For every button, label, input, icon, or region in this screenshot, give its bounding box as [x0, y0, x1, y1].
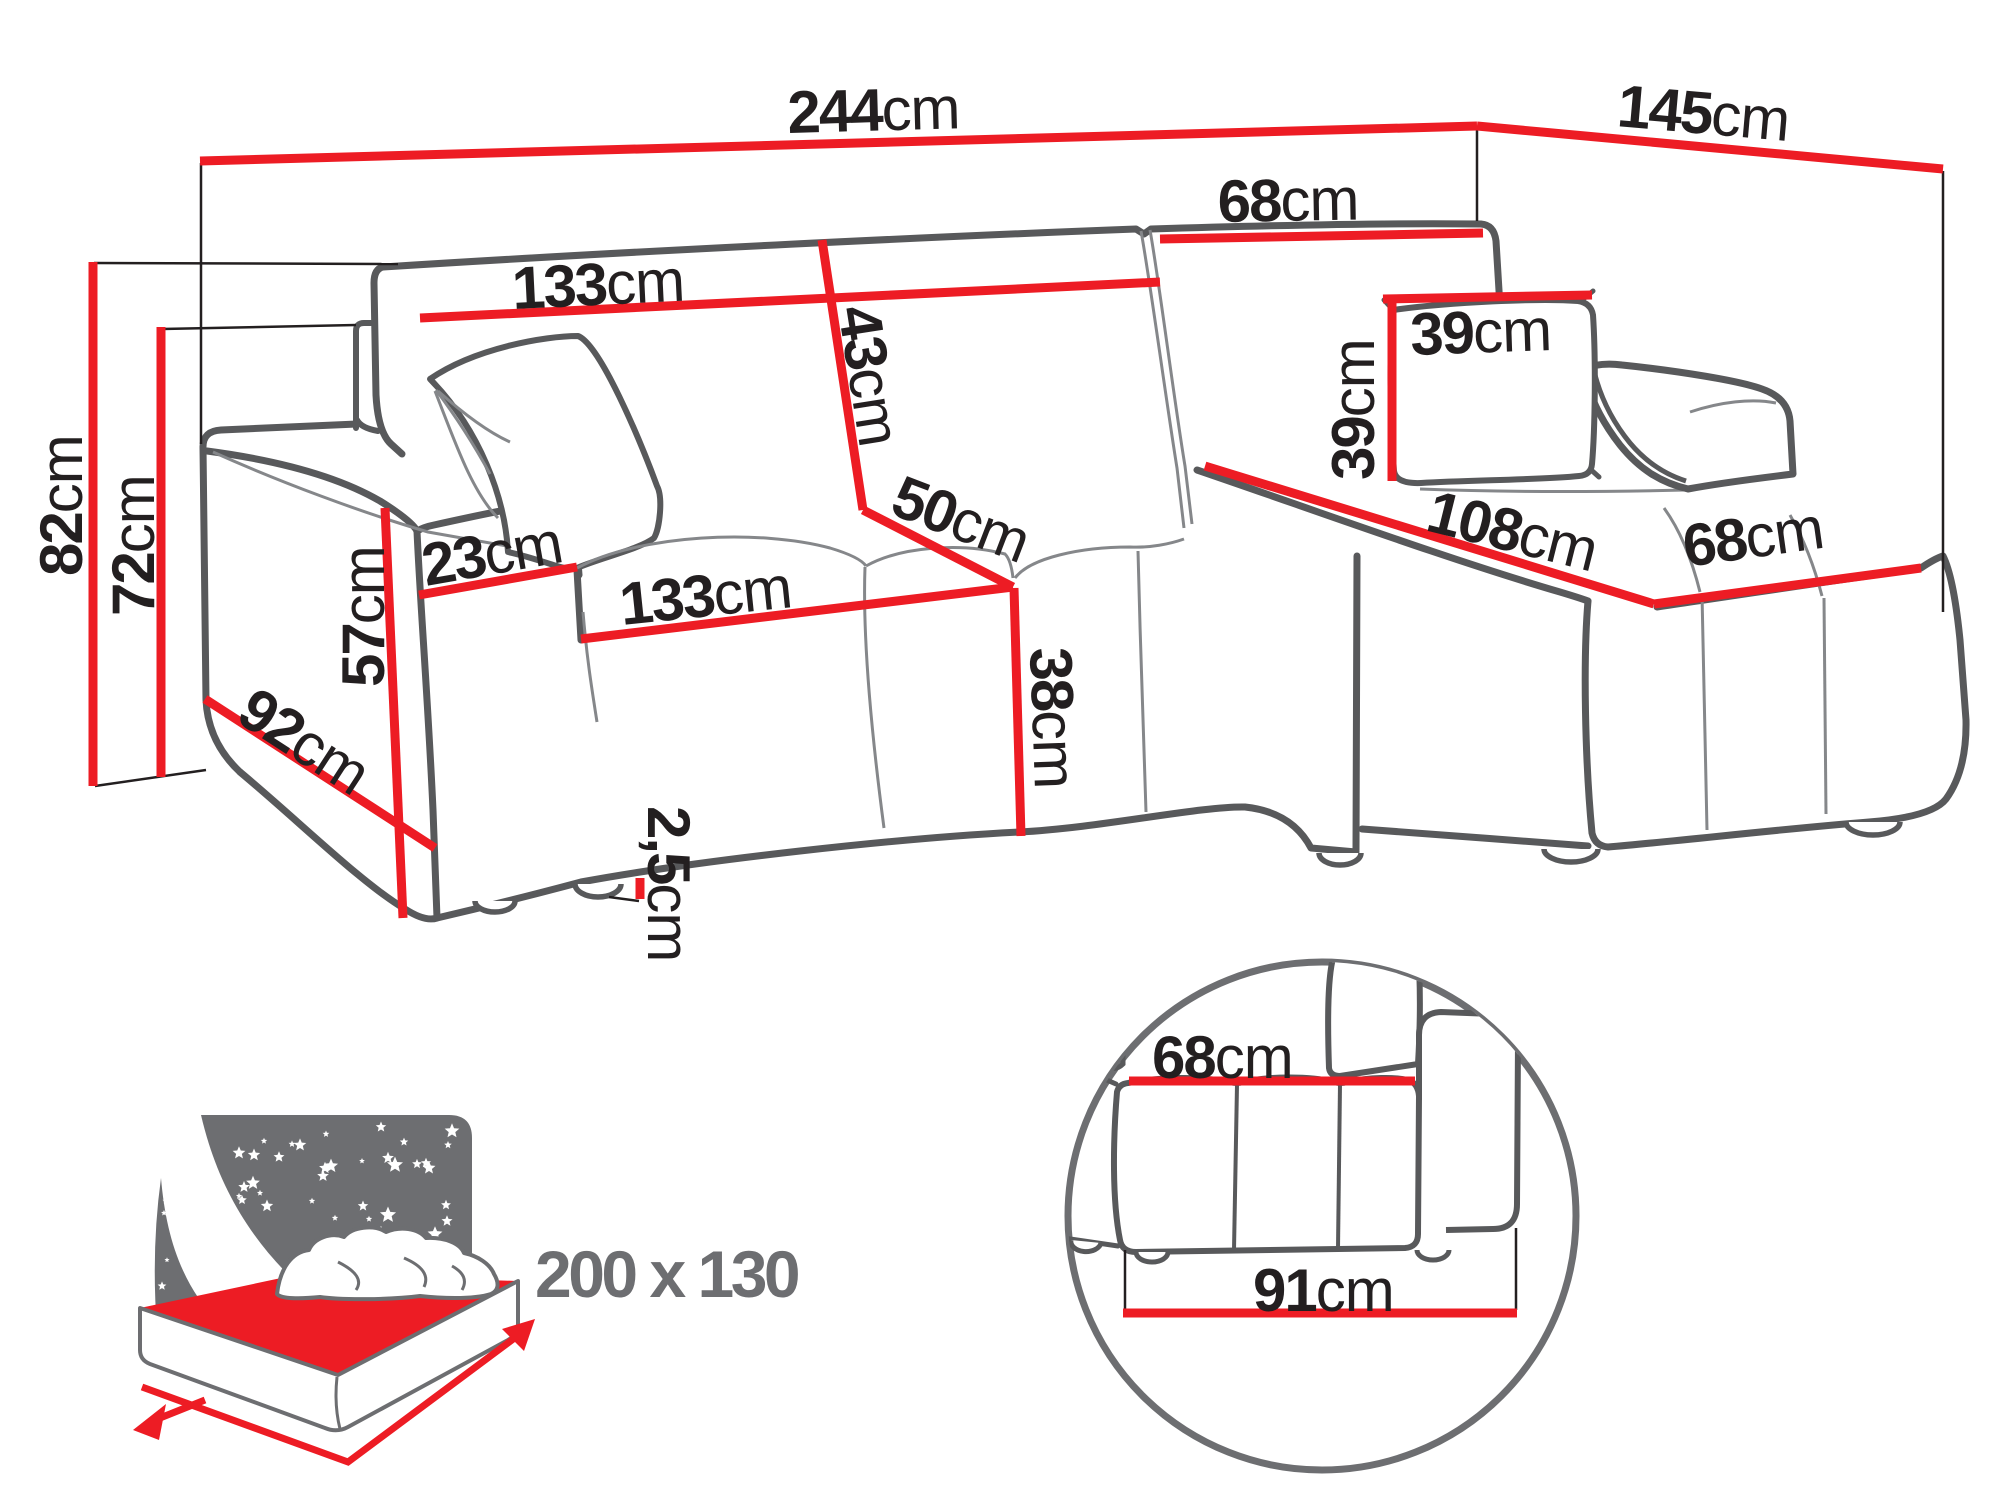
svg-text:200 x 130: 200 x 130 [535, 1237, 798, 1311]
svg-text:39cm: 39cm [1320, 339, 1387, 480]
svg-text:68cm: 68cm [1152, 1024, 1293, 1091]
svg-text:133cm: 133cm [510, 247, 685, 322]
svg-text:38cm: 38cm [1017, 646, 1089, 789]
svg-text:91cm: 91cm [1253, 1257, 1394, 1324]
svg-text:72cm: 72cm [100, 475, 167, 616]
svg-text:68cm: 68cm [1217, 166, 1359, 235]
svg-text:57cm: 57cm [330, 546, 397, 687]
svg-text:39cm: 39cm [1409, 296, 1552, 368]
svg-text:82cm: 82cm [28, 435, 95, 576]
svg-text:2,5cm: 2,5cm [635, 806, 702, 961]
svg-text:244cm: 244cm [786, 74, 960, 146]
